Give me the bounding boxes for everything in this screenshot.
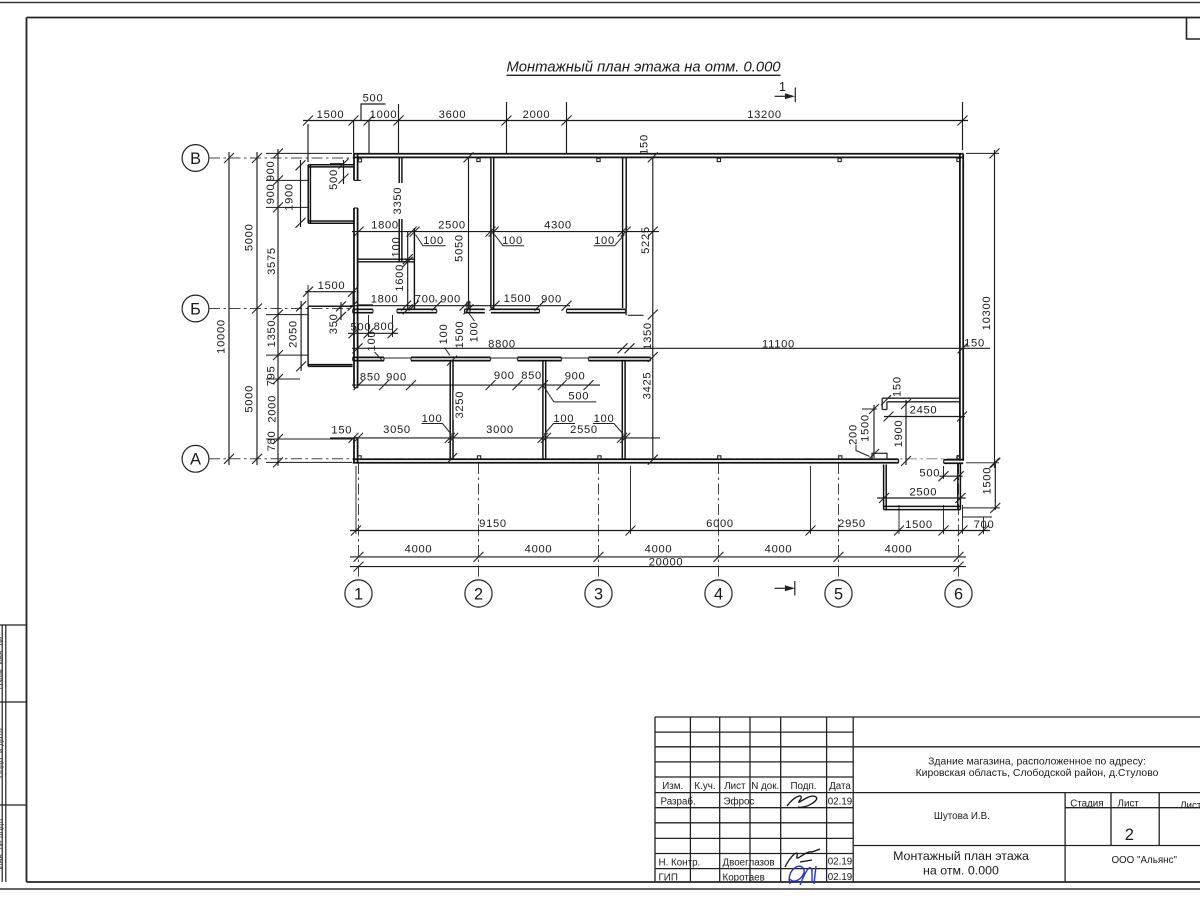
svg-text:2: 2 <box>474 585 483 603</box>
svg-text:500: 500 <box>363 93 384 105</box>
svg-text:5: 5 <box>834 585 843 603</box>
svg-text:Лист: Лист <box>724 781 746 792</box>
svg-text:Подп. и дата: Подп. и дата <box>0 728 5 778</box>
svg-text:10000: 10000 <box>215 319 227 354</box>
svg-text:5000: 5000 <box>243 223 255 251</box>
svg-text:1350: 1350 <box>266 320 278 348</box>
svg-text:Здание магазина, расположенное: Здание магазина, расположенное по адресу… <box>928 757 1146 768</box>
svg-text:Дата: Дата <box>829 781 851 792</box>
svg-text:3600: 3600 <box>439 109 467 121</box>
svg-text:Подп.: Подп. <box>790 781 816 792</box>
svg-text:780: 780 <box>266 431 278 452</box>
svg-text:100: 100 <box>553 413 574 425</box>
svg-text:1500: 1500 <box>318 280 346 292</box>
svg-text:В: В <box>190 150 201 168</box>
svg-text:Шутова И.В.: Шутова И.В. <box>934 811 990 822</box>
svg-text:4000: 4000 <box>765 544 793 556</box>
svg-text:900: 900 <box>265 161 277 182</box>
svg-text:100: 100 <box>502 235 523 247</box>
svg-text:3425: 3425 <box>641 372 653 400</box>
svg-text:N док.: N док. <box>751 781 779 792</box>
svg-text:ООО "Альянс": ООО "Альянс" <box>1111 855 1177 866</box>
svg-text:3000: 3000 <box>486 424 514 436</box>
svg-text:2: 2 <box>1125 826 1134 844</box>
svg-text:3050: 3050 <box>383 424 411 436</box>
svg-text:Б: Б <box>190 300 201 318</box>
svg-text:1000: 1000 <box>370 109 398 121</box>
svg-text:02.19: 02.19 <box>828 857 853 868</box>
svg-text:4000: 4000 <box>885 544 913 556</box>
svg-text:4300: 4300 <box>544 220 572 232</box>
svg-text:1500: 1500 <box>504 293 532 305</box>
svg-text:ГИП: ГИП <box>659 872 678 883</box>
svg-text:9150: 9150 <box>479 518 507 530</box>
svg-text:13200: 13200 <box>747 109 782 121</box>
svg-text:Н. Контр.: Н. Контр. <box>659 857 701 868</box>
svg-text:,: , <box>434 292 437 304</box>
svg-text:200: 200 <box>847 424 859 445</box>
svg-text:150: 150 <box>331 424 352 436</box>
svg-text:1800: 1800 <box>371 220 399 232</box>
svg-text:1600: 1600 <box>394 264 406 292</box>
svg-text:1500: 1500 <box>905 519 933 531</box>
svg-text:100: 100 <box>422 413 443 425</box>
svg-text:Изм.: Изм. <box>662 781 683 792</box>
svg-text:Инв. № подл.: Инв. № подл. <box>0 817 5 870</box>
svg-text:Лист: Лист <box>1118 799 1140 810</box>
svg-text:2500: 2500 <box>909 487 937 499</box>
svg-text:850: 850 <box>360 372 381 384</box>
svg-text:Стадия: Стадия <box>1070 799 1103 810</box>
svg-text:К.уч.: К.уч. <box>694 781 715 792</box>
svg-text:2000: 2000 <box>523 109 551 121</box>
svg-text:Монтажный план этажа на отм. 0: Монтажный план этажа на отм. 0.000 <box>506 60 781 76</box>
svg-text:500: 500 <box>919 468 940 480</box>
svg-text:3250: 3250 <box>454 391 466 419</box>
svg-text:100: 100 <box>594 413 615 425</box>
svg-text:3350: 3350 <box>392 187 404 215</box>
svg-text:2950: 2950 <box>838 518 866 530</box>
svg-text:5225: 5225 <box>640 226 652 254</box>
svg-text:1500: 1500 <box>981 467 993 495</box>
svg-text:11100: 11100 <box>762 338 795 350</box>
svg-text:1500: 1500 <box>454 321 466 349</box>
svg-text:Двоеглазов: Двоеглазов <box>723 857 775 868</box>
svg-text:Разраб.: Разраб. <box>661 797 696 808</box>
svg-text:2500: 2500 <box>438 220 466 232</box>
svg-text:А: А <box>190 451 201 469</box>
svg-text:1900: 1900 <box>893 420 905 448</box>
svg-text:500: 500 <box>328 169 340 190</box>
svg-text:2550: 2550 <box>570 424 598 436</box>
svg-text:5050: 5050 <box>453 234 465 262</box>
svg-text:5000: 5000 <box>243 385 255 413</box>
svg-text:1900: 1900 <box>283 183 295 211</box>
svg-text:10300: 10300 <box>981 296 993 331</box>
svg-text:Взам. инв. №: Взам. инв. № <box>0 637 5 690</box>
svg-text:700: 700 <box>415 293 436 305</box>
svg-text:4000: 4000 <box>645 544 673 556</box>
svg-text:6: 6 <box>954 585 963 603</box>
svg-text:150: 150 <box>638 134 650 155</box>
svg-text:900: 900 <box>386 372 407 384</box>
svg-text:02.19: 02.19 <box>828 872 853 883</box>
svg-text:2000: 2000 <box>267 395 279 423</box>
svg-text:1500: 1500 <box>317 109 345 121</box>
svg-text:850: 850 <box>521 370 542 382</box>
svg-text:795: 795 <box>266 366 278 387</box>
svg-text:3575: 3575 <box>266 247 278 275</box>
svg-text:Листов: Листов <box>1180 801 1200 812</box>
svg-text:8800: 8800 <box>488 338 516 350</box>
svg-text:1350: 1350 <box>642 322 654 350</box>
svg-text:900: 900 <box>494 370 515 382</box>
svg-text:4: 4 <box>714 585 723 603</box>
svg-text:150: 150 <box>892 376 904 397</box>
svg-text:100: 100 <box>468 322 480 343</box>
svg-text:900: 900 <box>440 293 461 305</box>
svg-text:Кировская область, Слободской: Кировская область, Слободской район, д.С… <box>916 767 1159 779</box>
svg-text:100: 100 <box>594 235 615 247</box>
svg-text:1: 1 <box>779 80 786 94</box>
svg-text:900: 900 <box>541 293 562 305</box>
svg-text:100: 100 <box>390 237 402 258</box>
svg-text:1: 1 <box>354 585 363 603</box>
svg-text:2450: 2450 <box>910 405 938 417</box>
svg-text:900: 900 <box>265 184 277 205</box>
svg-text:4000: 4000 <box>405 544 433 556</box>
svg-text:02.19: 02.19 <box>828 797 853 808</box>
svg-text:2050: 2050 <box>288 320 300 348</box>
svg-text:100: 100 <box>423 235 444 247</box>
svg-text:700: 700 <box>974 519 995 531</box>
svg-text:на отм. 0.000: на отм. 0.000 <box>923 863 999 877</box>
svg-text:1500: 1500 <box>859 414 871 442</box>
svg-text:20000: 20000 <box>649 557 684 569</box>
svg-text:Коротаев: Коротаев <box>723 872 765 883</box>
svg-text:Монтажный план этажа: Монтажный план этажа <box>893 849 1029 863</box>
svg-text:3: 3 <box>594 585 603 603</box>
svg-text:4000: 4000 <box>525 544 553 556</box>
svg-text:350: 350 <box>328 313 340 334</box>
svg-text:6000: 6000 <box>706 518 734 530</box>
svg-text:900: 900 <box>565 371 586 383</box>
svg-text:150: 150 <box>964 338 985 350</box>
svg-text:Эфрос: Эфрос <box>724 797 755 808</box>
svg-text:100: 100 <box>438 324 450 345</box>
svg-text:1800: 1800 <box>371 294 399 306</box>
svg-text:500: 500 <box>568 391 589 403</box>
